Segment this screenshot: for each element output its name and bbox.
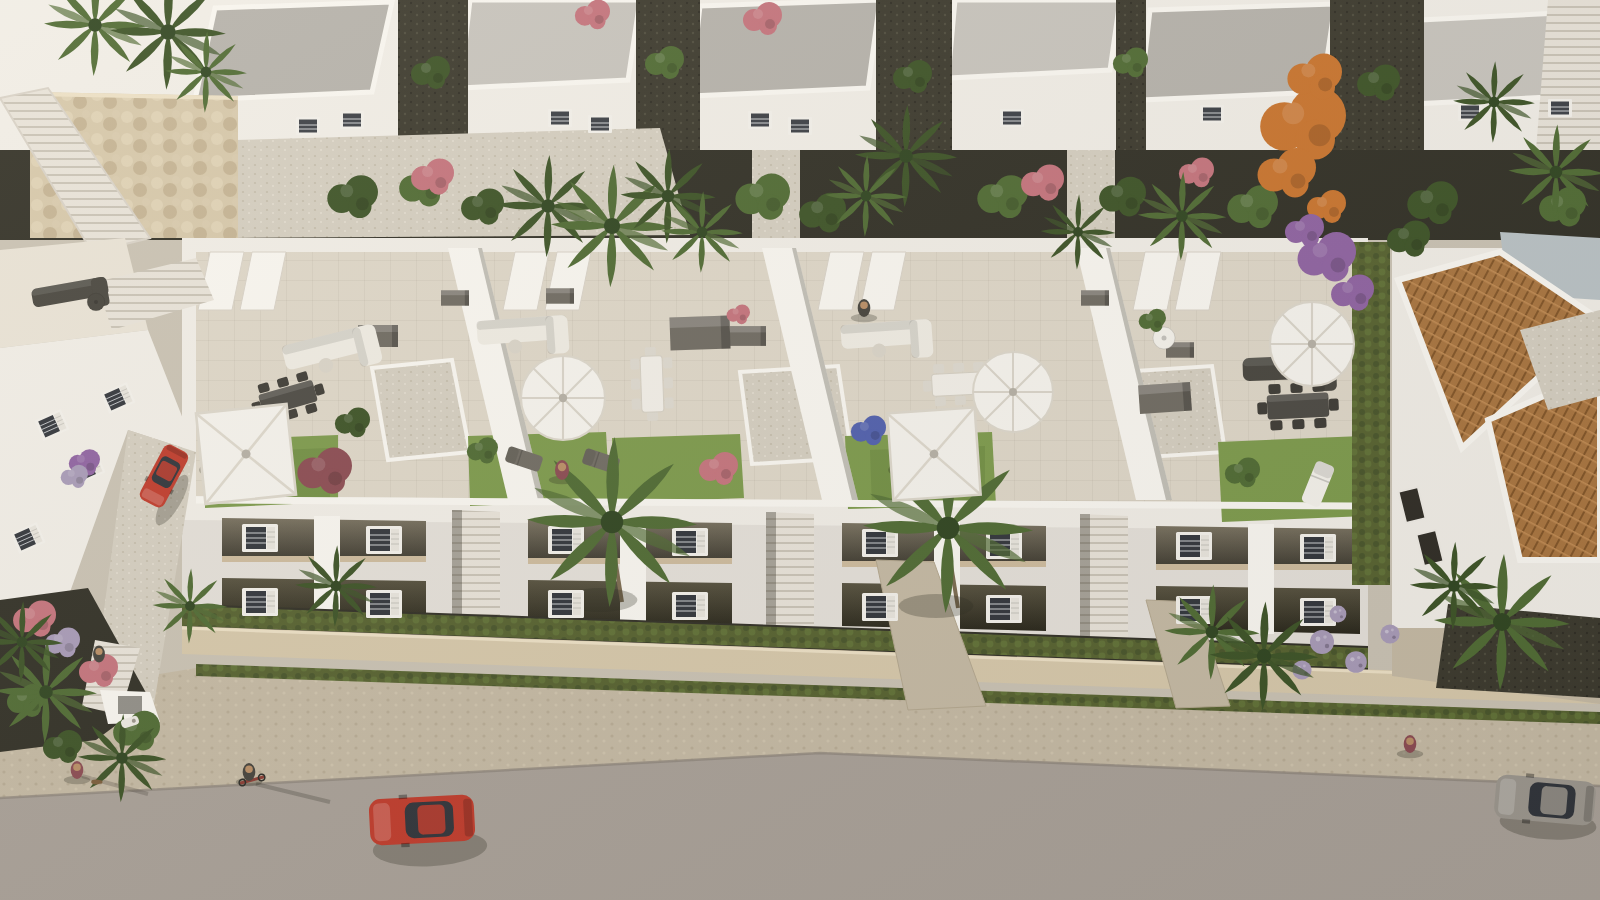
aerial-render-residential-development [0, 0, 1600, 900]
sunlight-overlay [0, 0, 1600, 900]
scene-canvas [0, 0, 1600, 900]
